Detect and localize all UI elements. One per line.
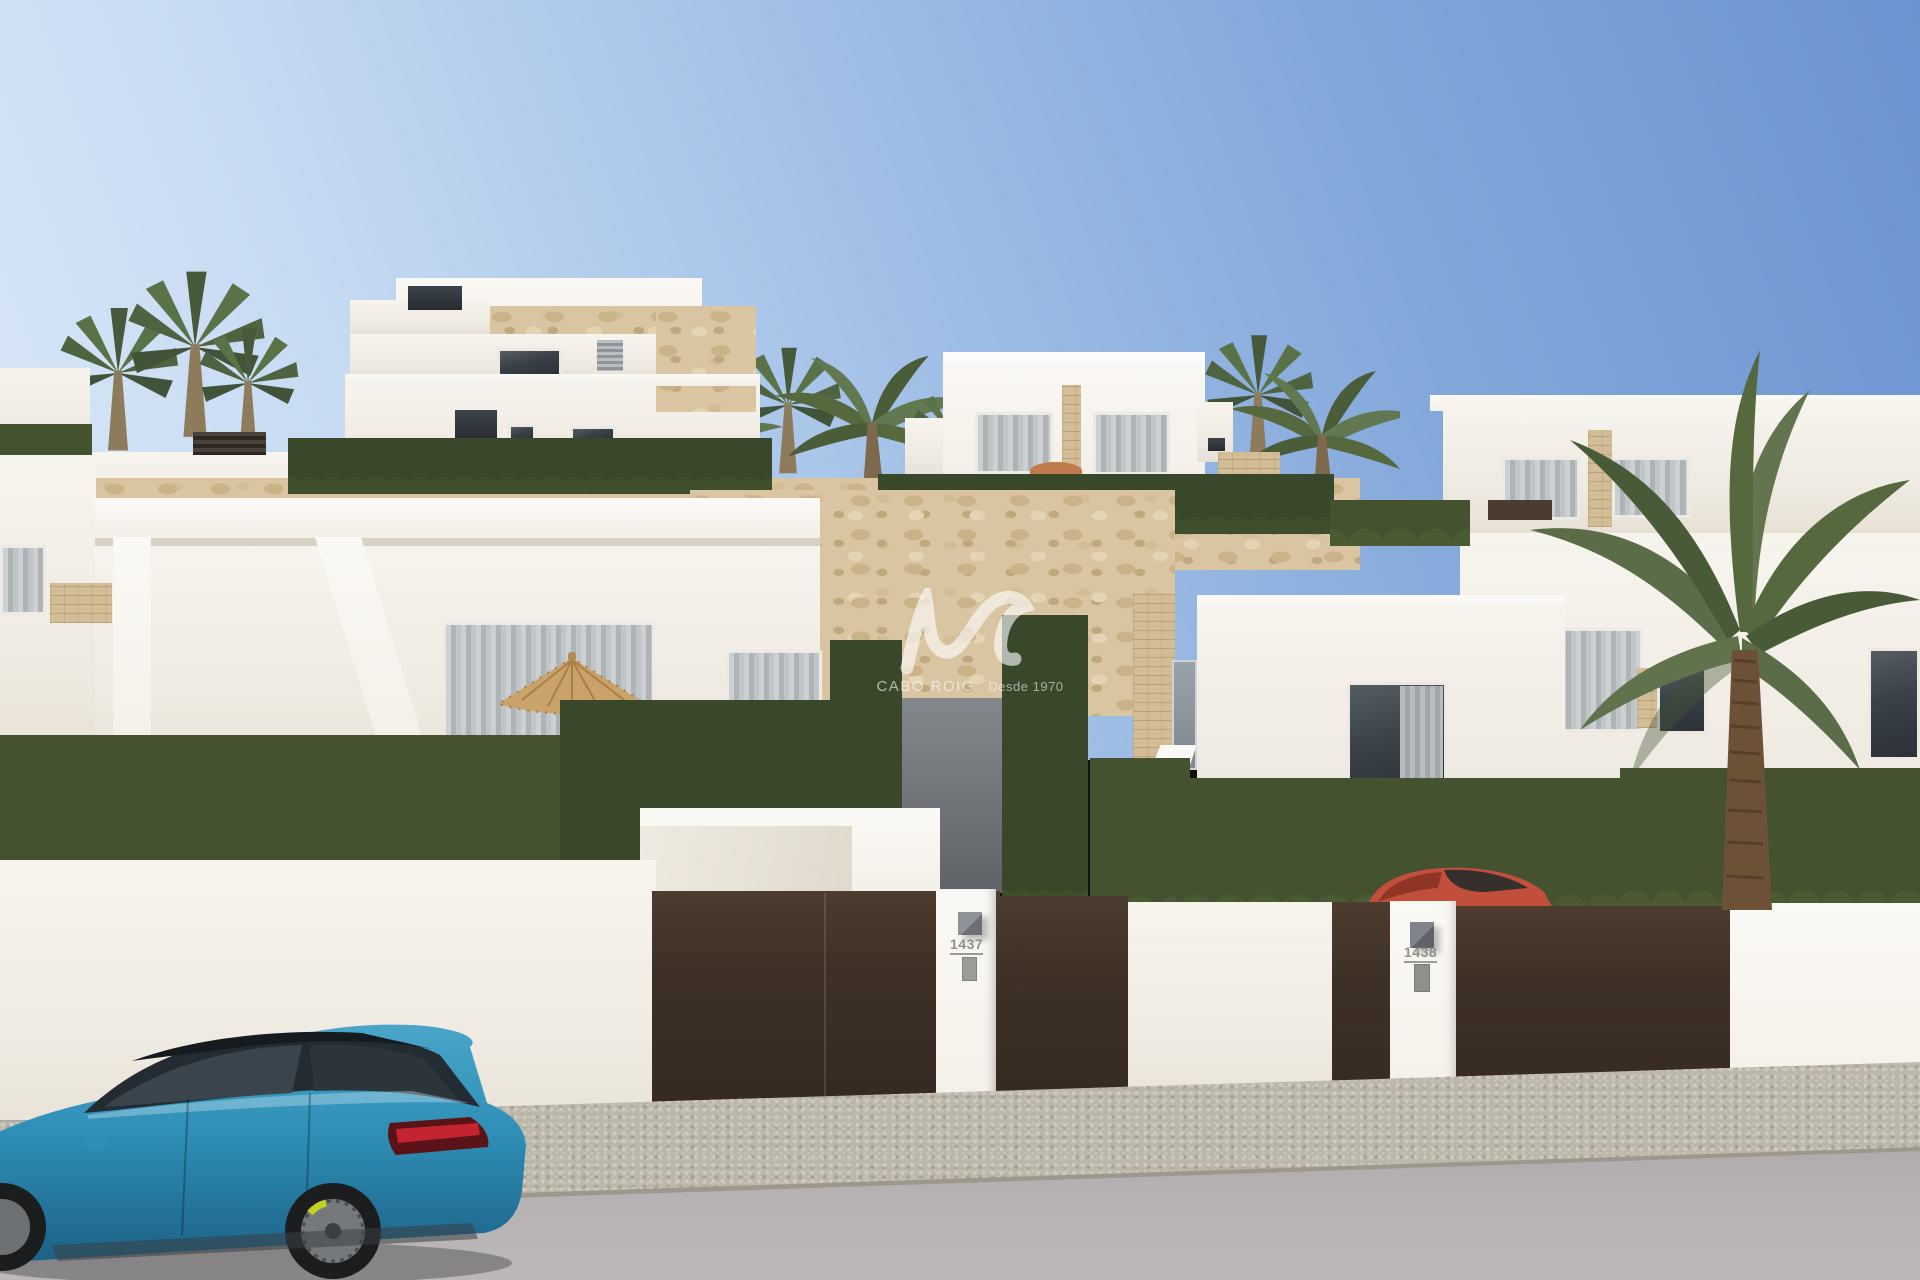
bg-villa-stone-band bbox=[490, 306, 673, 334]
car-mirror bbox=[84, 1135, 108, 1151]
intercom-icon bbox=[962, 957, 977, 981]
blue-car bbox=[0, 995, 652, 1280]
hedge-row-left bbox=[288, 438, 772, 494]
ml-villa-roof-shadow bbox=[95, 538, 820, 546]
render-scene: 1437 1438 bbox=[0, 0, 1920, 1280]
bg-villa-vent-grille bbox=[597, 340, 623, 371]
chimney-cap-icon bbox=[193, 432, 266, 455]
cypress-hedge-right-of-driveway bbox=[1002, 615, 1088, 907]
ml-villa-roof-slab bbox=[95, 498, 820, 540]
big-palm-tree bbox=[1450, 350, 1920, 950]
bg-villa-stone-corner bbox=[656, 306, 756, 412]
house-number-1437: 1437 bbox=[950, 936, 983, 955]
gate-1437-seam bbox=[824, 893, 826, 1119]
ml-villa-stone-patch bbox=[50, 583, 112, 623]
tc-neighbor-window bbox=[1208, 438, 1225, 451]
house-number-1438: 1438 bbox=[1404, 944, 1437, 963]
bg-villa-top-window bbox=[408, 286, 462, 310]
mailbox-slot-icon bbox=[958, 912, 982, 935]
bg-villa-ledge bbox=[345, 374, 760, 386]
tc-villa-window-right bbox=[1093, 412, 1170, 475]
hedge-row-right bbox=[1330, 500, 1470, 546]
tc-villa-roof-fascia bbox=[943, 352, 1205, 362]
intercom-icon bbox=[1414, 964, 1430, 992]
ml-villa-left-window bbox=[0, 545, 46, 615]
